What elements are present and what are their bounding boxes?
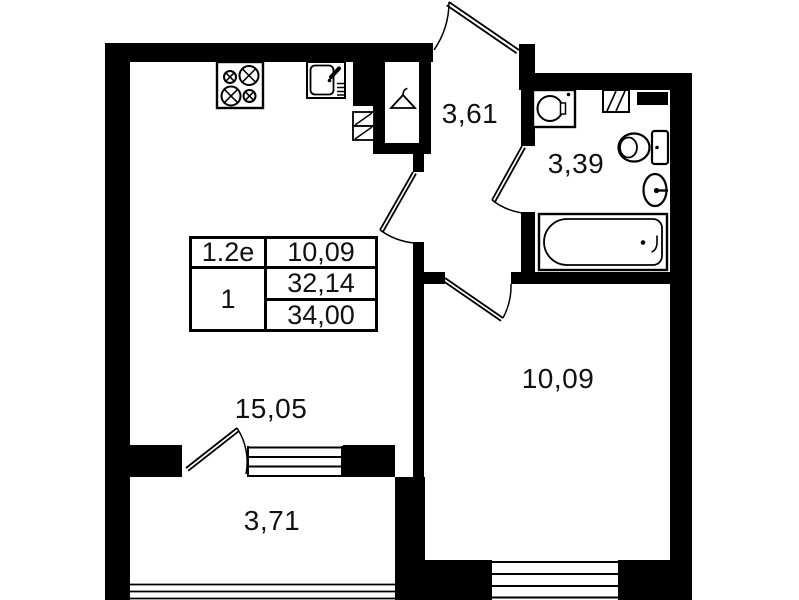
wall-balcony-right [395,477,425,600]
bedroom-window [490,560,620,600]
apartment-info-table: 1.2e 10,09 1 32,14 34,00 [189,236,378,332]
hall-living-door [380,172,416,243]
balcony-door-swing-arc [237,428,247,474]
bathroom-area-label: 3,39 [548,150,605,178]
wall-top-outer [105,43,433,62]
wall-bathroom-top [535,73,692,90]
wall-hall-stub-upper [413,154,424,172]
stove-icon [217,62,263,108]
balcony-area-label: 3,71 [244,507,301,535]
wall-kitchen-vent-bar [353,62,373,106]
living-room-area-label: 15,05 [235,395,308,423]
entry-door [434,2,519,53]
wall-living-bottom-pier [343,445,395,477]
wall-closet-bottom [373,143,431,154]
unit-type-cell: 1.2e [191,238,266,268]
washbasin-icon [644,174,669,206]
living-room-window [247,446,343,477]
floor-plan-drawing [0,0,799,600]
bedroom-door [443,278,511,321]
toilet-icon [619,131,669,164]
wall-bottom-pier-right [620,560,678,600]
total-area-cell: 34,00 [266,300,377,331]
area-excl-balcony-cell: 32,14 [266,268,377,300]
bathroom-door-swing-arc [492,200,522,213]
room-count-cell: 1 [191,268,266,331]
hallway-area-label: 3,61 [442,100,499,128]
wardrobe-hanger-icon [391,89,415,109]
bedroom-door-swing-arc [503,284,511,318]
bathroom-vent-hatch [603,90,629,112]
wall-right-outer [670,73,692,600]
wall-bedroom-top-left-stub [413,272,445,284]
balcony-door [186,428,247,474]
wall-closet-right [419,62,431,154]
bathroom-vent-solid [637,92,668,105]
bathroom-door [492,146,525,213]
hall-living-door-swing-arc [380,230,414,243]
wall-entry-corner [519,44,535,90]
washing-machine-icon [533,90,575,127]
balcony-glazing [130,585,395,599]
floor-plan: 3,61 3,39 10,09 15,05 3,71 1.2e 10,09 1 … [0,0,799,600]
wall-living-bottom-left [130,445,182,477]
entry-door-swing-arc [434,2,449,50]
wall-bathroom-left-lower [521,212,535,272]
wall-bottom-pier-left [425,560,490,600]
living-area-cell: 10,09 [266,238,377,268]
wall-left-outer [105,43,130,600]
bathtub-icon [539,214,667,270]
kitchen-sink-icon [307,62,345,98]
wall-bedroom-top-right [511,272,692,284]
bedroom-area-label: 10,09 [522,365,595,393]
kitchen-vent-hatch [353,112,374,140]
